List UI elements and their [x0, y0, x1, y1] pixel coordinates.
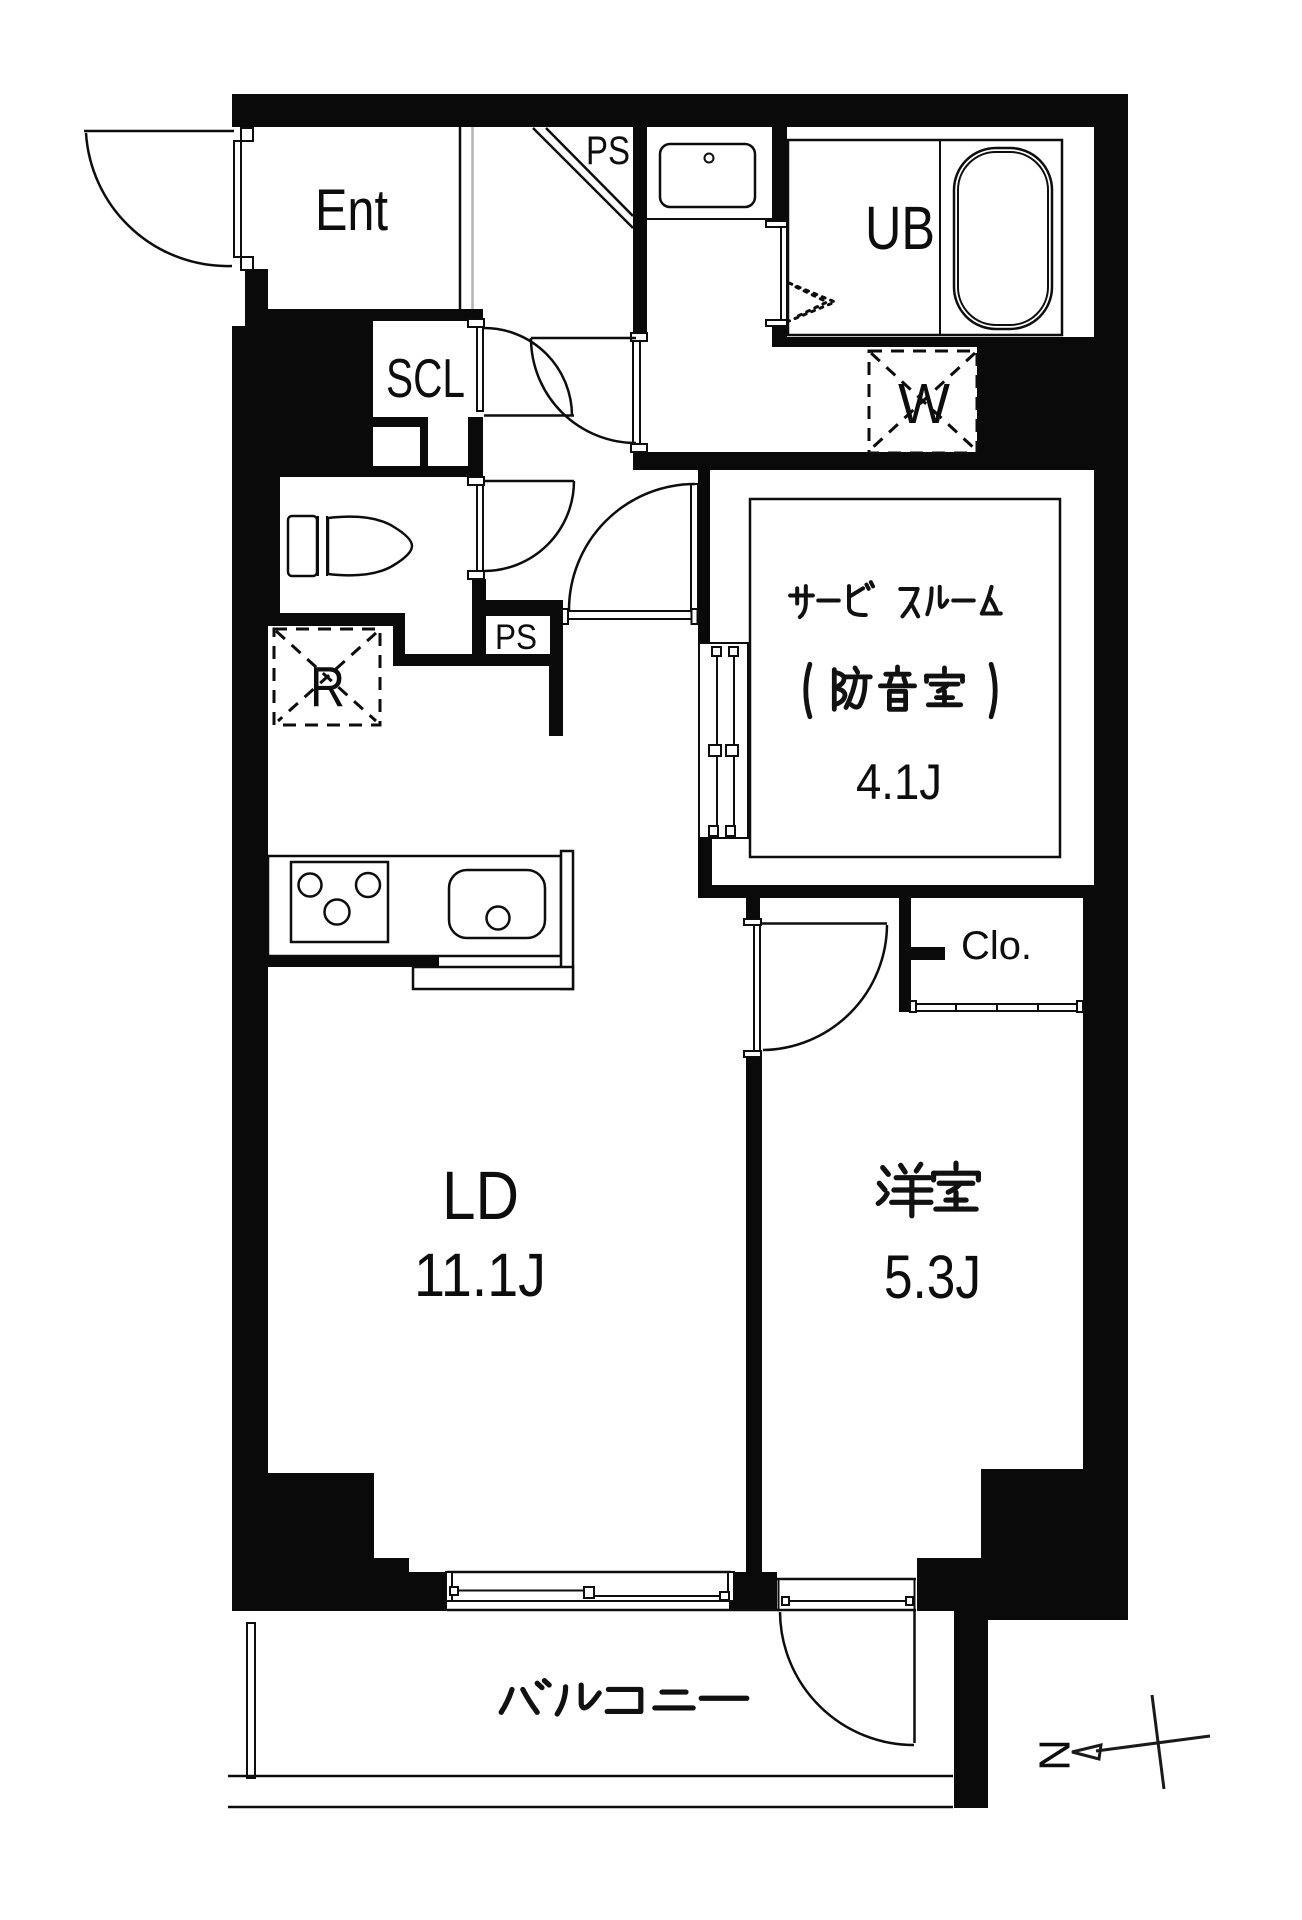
svg-text:4.1J: 4.1J [856, 754, 942, 810]
svg-text:11.1J: 11.1J [414, 1241, 546, 1309]
svg-text:LD: LD [442, 1157, 519, 1234]
svg-text:5.3J: 5.3J [884, 1243, 981, 1311]
svg-text:PS: PS [495, 618, 537, 657]
svg-text:Ent: Ent [315, 178, 388, 243]
svg-text:N: N [1031, 1739, 1080, 1771]
svg-text:Clo.: Clo. [961, 924, 1032, 968]
svg-text:R: R [310, 655, 345, 719]
svg-text:SCL: SCL [386, 347, 465, 409]
svg-text:UB: UB [865, 194, 935, 262]
svg-text:PS: PS [586, 129, 630, 173]
svg-text:W: W [898, 372, 950, 436]
